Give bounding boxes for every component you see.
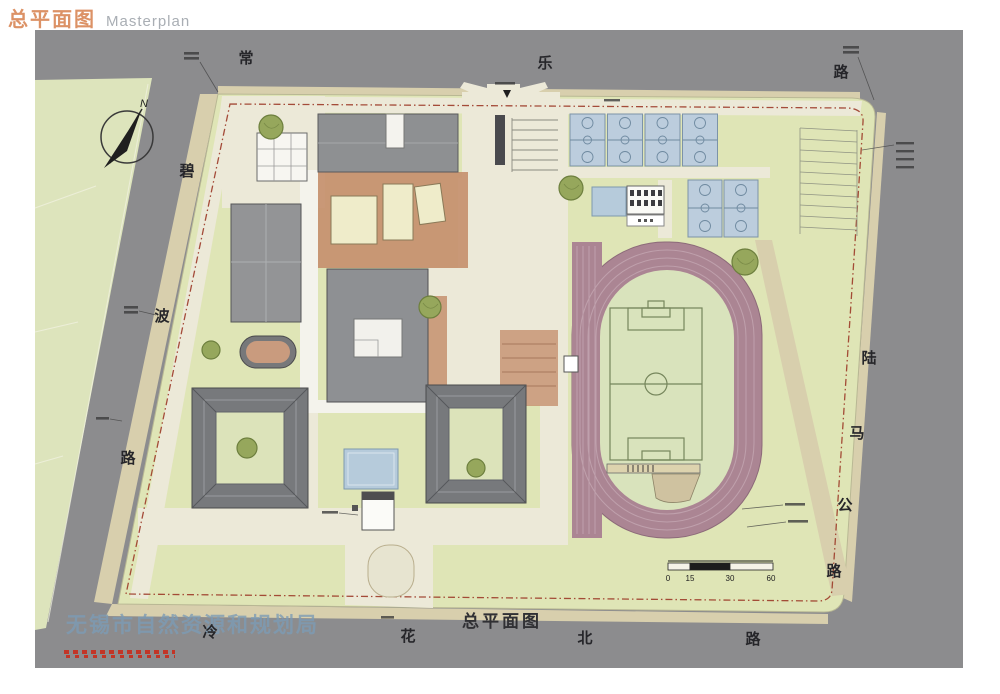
road-char: 路 bbox=[120, 449, 136, 467]
road-char: 碧 bbox=[178, 162, 194, 180]
scale-tick: 0 bbox=[666, 574, 671, 583]
siteplan-drawing: N 无锡市自然资源和规划局 常 乐 路 碧 波 路 陆 马 公 路 冷 花 北 … bbox=[0, 0, 1000, 694]
service-building bbox=[627, 186, 664, 226]
watermark-text: 无锡市自然资源和规划局 bbox=[66, 613, 319, 637]
title-chinese: 总平面图 bbox=[8, 3, 96, 32]
central-building bbox=[327, 269, 428, 402]
road-char: 北 bbox=[577, 630, 592, 647]
scale-tick: 15 bbox=[686, 574, 695, 583]
scale-tick: 60 bbox=[767, 574, 776, 583]
southeast-courtyard-building bbox=[426, 385, 526, 503]
road-char: 乐 bbox=[537, 54, 552, 72]
swimming-pool bbox=[344, 449, 398, 489]
scale-tick: 30 bbox=[726, 574, 735, 583]
entrance-canopy bbox=[240, 336, 296, 368]
small-pool bbox=[592, 187, 626, 216]
white-grid-building bbox=[257, 133, 307, 181]
road-char: 常 bbox=[238, 49, 253, 67]
ramp bbox=[495, 115, 505, 165]
road-char: 路 bbox=[833, 63, 849, 81]
title-english: Masterplan bbox=[106, 13, 190, 30]
left-slab-building bbox=[231, 204, 301, 322]
road-char: 路 bbox=[826, 562, 842, 580]
road-char: 路 bbox=[745, 630, 761, 648]
road-char: 花 bbox=[400, 627, 415, 645]
red-stamp-text bbox=[63, 647, 175, 658]
north-slab-building bbox=[318, 114, 458, 172]
road-char: 波 bbox=[154, 307, 170, 325]
road-char: 公 bbox=[837, 497, 852, 514]
masterplan-page: 总平面图 Masterplan bbox=[0, 0, 1000, 694]
road-char: 马 bbox=[849, 425, 864, 442]
entrance-island bbox=[368, 545, 414, 597]
road-char: 陆 bbox=[861, 350, 876, 367]
rostrum bbox=[564, 356, 578, 372]
page-title: 总平面图 Masterplan bbox=[8, 3, 190, 32]
plan-caption: 总平面图 bbox=[462, 611, 542, 631]
compass-n-label: N bbox=[140, 98, 148, 110]
road-char: 冷 bbox=[202, 623, 217, 641]
running-track bbox=[564, 242, 762, 538]
